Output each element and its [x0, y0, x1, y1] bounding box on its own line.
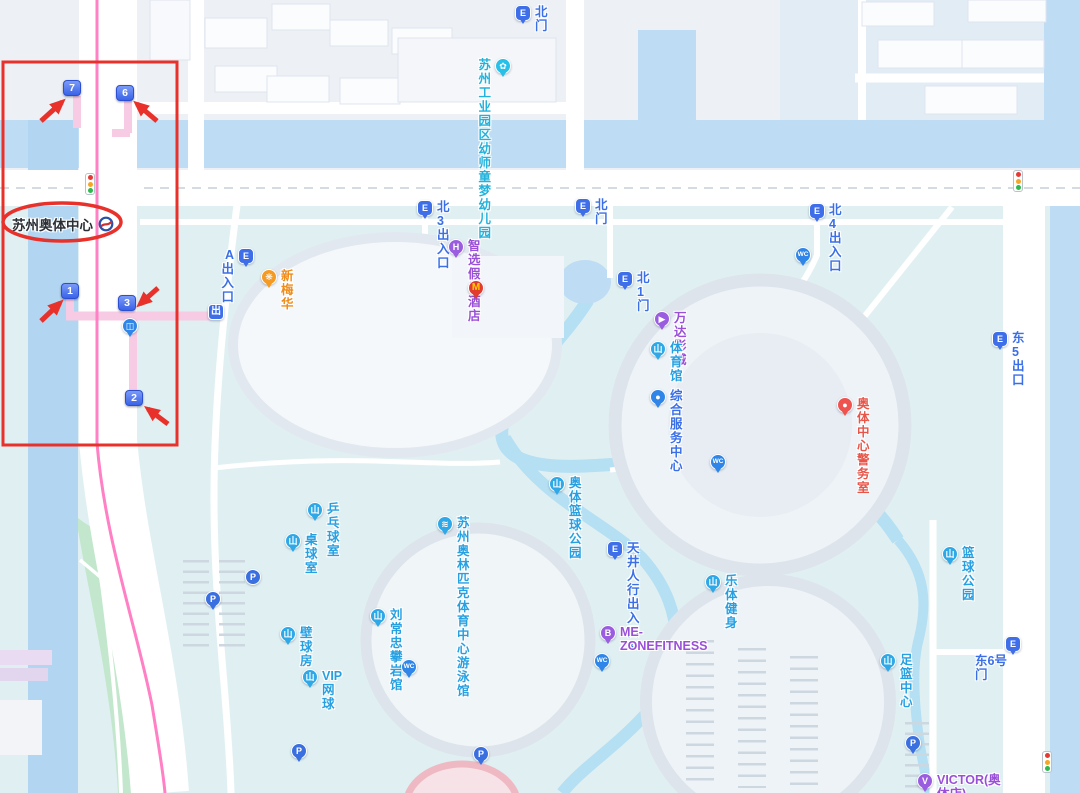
pin-glyph-icon: E [622, 275, 628, 284]
poi-pin-icon[interactable]: ❋ [261, 269, 277, 285]
poi-pin-icon[interactable]: H [448, 239, 464, 255]
metro-exit-3[interactable]: 3 [118, 295, 136, 311]
poi-pin-icon[interactable]: E [238, 248, 254, 264]
pin-glyph-icon: 山 [283, 630, 292, 639]
pin-glyph-icon: WC [404, 664, 415, 671]
pin-glyph-icon: WC [798, 252, 809, 259]
poi-pin-icon[interactable]: 山 [942, 546, 958, 562]
pin-glyph-icon: E [520, 9, 526, 18]
poi-pin-icon[interactable]: P [245, 569, 261, 585]
poi-pin-icon[interactable]: 山 [307, 502, 323, 518]
poi-pin-icon[interactable]: ● [837, 397, 853, 413]
poi-label: 足篮中心 [900, 653, 913, 709]
poi-pin-icon[interactable]: B [600, 625, 616, 641]
poi-pin-icon[interactable]: 出 [208, 304, 224, 320]
pin-glyph-icon: 山 [552, 480, 561, 489]
pin-glyph-icon: E [814, 207, 820, 216]
poi-pin-icon[interactable]: ✿ [495, 58, 511, 74]
poi-label: 刘常忠攀岩馆 [390, 608, 403, 692]
poi-pin-icon[interactable]: WC [594, 653, 610, 669]
poi-pin-icon[interactable]: 山 [285, 533, 301, 549]
pin-glyph-icon: ▶ [659, 315, 666, 324]
poi-pin-icon[interactable]: WC [795, 247, 811, 263]
poi-label: ME-ZONEFITNESS [620, 625, 708, 653]
metro-exit-6[interactable]: 6 [116, 85, 134, 101]
pin-glyph-icon: B [605, 629, 612, 638]
poi-label: 桌球室 [305, 533, 318, 575]
poi-pin-icon[interactable]: 山 [549, 476, 565, 492]
pin-glyph-icon: ● [655, 393, 660, 402]
poi-pin-icon[interactable]: E [417, 200, 433, 216]
poi-pin-icon[interactable]: 山 [705, 574, 721, 590]
poi-pin-icon[interactable]: 山 [650, 341, 666, 357]
pin-glyph-icon: 山 [708, 578, 717, 587]
poi-label: 乐体健身 [725, 574, 738, 630]
poi-label: 篮球公园 [962, 546, 975, 602]
poi-pin-icon[interactable]: E [992, 331, 1008, 347]
poi-pin-icon[interactable]: 山 [880, 653, 896, 669]
exit-number: 1 [67, 285, 73, 297]
metro-station-label[interactable]: 苏州奥体中心 [12, 214, 114, 234]
poi-label: 北1门 [637, 271, 650, 313]
poi-label: 苏州奥林匹克 体育中心游泳馆 [457, 516, 470, 698]
poi-pin-icon[interactable]: P [473, 746, 489, 762]
poi-label: VIP网球 [322, 669, 342, 711]
poi-pin-icon[interactable]: P [291, 743, 307, 759]
pin-layer: E 北门 E 北3出入口 E A出入口 E 北门 E 北4出入口 E 北1门 [0, 0, 1080, 793]
poi-pin-icon[interactable]: 山 [302, 669, 318, 685]
poi-pin-icon[interactable]: P [905, 735, 921, 751]
exit-number: 7 [69, 82, 75, 94]
pin-glyph-icon: ● [842, 401, 847, 410]
pin-glyph-icon: ≋ [441, 520, 449, 529]
pin-glyph-icon: ✿ [499, 62, 507, 71]
pin-glyph-icon: 山 [310, 506, 319, 515]
poi-label: 北门 [535, 5, 548, 33]
traffic-light-southeast [1042, 751, 1052, 773]
poi-label: 北门 [595, 198, 608, 226]
map-viewport[interactable]: E 北门 E 北3出入口 E A出入口 E 北门 E 北4出入口 E 北1门 [0, 0, 1080, 793]
pin-glyph-icon: E [580, 202, 586, 211]
poi-pin-icon[interactable]: E [607, 541, 623, 557]
pin-glyph-icon: 山 [288, 537, 297, 546]
poi-label: 综合服务中心 [670, 389, 683, 473]
pin-glyph-icon: H [453, 243, 460, 252]
pin-glyph-icon: E [997, 335, 1003, 344]
pin-glyph-icon: 山 [945, 550, 954, 559]
poi-pin-icon[interactable]: V [917, 773, 933, 789]
metro-exit-1[interactable]: 1 [61, 283, 79, 299]
pin-glyph-icon: 山 [883, 657, 892, 666]
poi-label: 体育馆 [670, 341, 683, 383]
poi-label: 新梅华 [281, 269, 294, 311]
poi-label: 苏州工业园区 幼师童梦幼儿园 [478, 58, 491, 240]
pin-glyph-icon: 山 [305, 673, 314, 682]
poi-pin-icon[interactable]: E [575, 198, 591, 214]
poi-label: 奥体中心警务室 [857, 397, 870, 495]
traffic-light-east [1013, 170, 1023, 192]
pin-glyph-icon: WC [597, 658, 608, 665]
pin-glyph-icon: 山 [653, 345, 662, 354]
poi-pin-icon[interactable]: WC [401, 659, 417, 675]
pin-glyph-icon: ❋ [265, 273, 273, 282]
pin-glyph-icon: M [472, 283, 480, 293]
pin-glyph-icon: 山 [373, 612, 382, 621]
poi-label: A出入口 [222, 248, 235, 304]
suzhou-metro-logo-icon [98, 216, 114, 232]
poi-pin-icon[interactable]: E [1005, 636, 1021, 652]
exit-number: 3 [124, 297, 130, 309]
pin-glyph-icon: P [250, 573, 256, 582]
pin-glyph-icon: P [478, 750, 484, 759]
poi-pin-icon[interactable]: 山 [280, 626, 296, 642]
metro-exit-7[interactable]: 7 [63, 80, 81, 96]
pin-glyph-icon: 出 [211, 307, 221, 317]
poi-pin-icon[interactable]: E [809, 203, 825, 219]
pin-glyph-icon: E [1010, 640, 1016, 649]
poi-label: 壁球房 [300, 626, 313, 668]
poi-pin-icon[interactable]: E [617, 271, 633, 287]
poi-pin-icon[interactable]: 山 [370, 608, 386, 624]
exit-number: 6 [122, 87, 128, 99]
pin-glyph-icon: P [910, 739, 916, 748]
poi-pin-icon[interactable]: P [205, 591, 221, 607]
pin-glyph-icon: E [422, 204, 428, 213]
pin-glyph-icon: WC [713, 459, 724, 466]
poi-label: VICTOR(奥体店) [937, 773, 1001, 793]
poi-pin-icon[interactable]: M [468, 280, 484, 296]
poi-label: 东5出口 [1012, 331, 1025, 387]
poi-pin-icon[interactable]: E [515, 5, 531, 21]
poi-label: 北4出入口 [829, 203, 842, 273]
pin-glyph-icon: ◫ [126, 322, 135, 331]
poi-label: 奥体篮球公园 [569, 476, 582, 560]
pin-glyph-icon: E [612, 545, 618, 554]
pin-glyph-icon: V [922, 777, 928, 786]
poi-pin-icon[interactable]: ● [650, 389, 666, 405]
poi-label: 乒乓球室 [327, 502, 340, 558]
pin-glyph-icon: E [243, 252, 249, 261]
poi-pin-icon[interactable]: WC [710, 454, 726, 470]
exit-number: 2 [131, 392, 137, 404]
traffic-light-west [85, 173, 95, 195]
poi-pin-icon[interactable]: ◫ [122, 318, 138, 334]
poi-label: 东6号门 [975, 654, 1013, 682]
station-name: 苏州奥体中心 [12, 214, 93, 234]
pin-glyph-icon: P [210, 595, 216, 604]
pin-glyph-icon: P [296, 747, 302, 756]
poi-pin-icon[interactable]: ≋ [437, 516, 453, 532]
poi-label: 北3出入口 [437, 200, 450, 270]
metro-exit-2[interactable]: 2 [125, 390, 143, 406]
poi-pin-icon[interactable]: ▶ [654, 311, 670, 327]
